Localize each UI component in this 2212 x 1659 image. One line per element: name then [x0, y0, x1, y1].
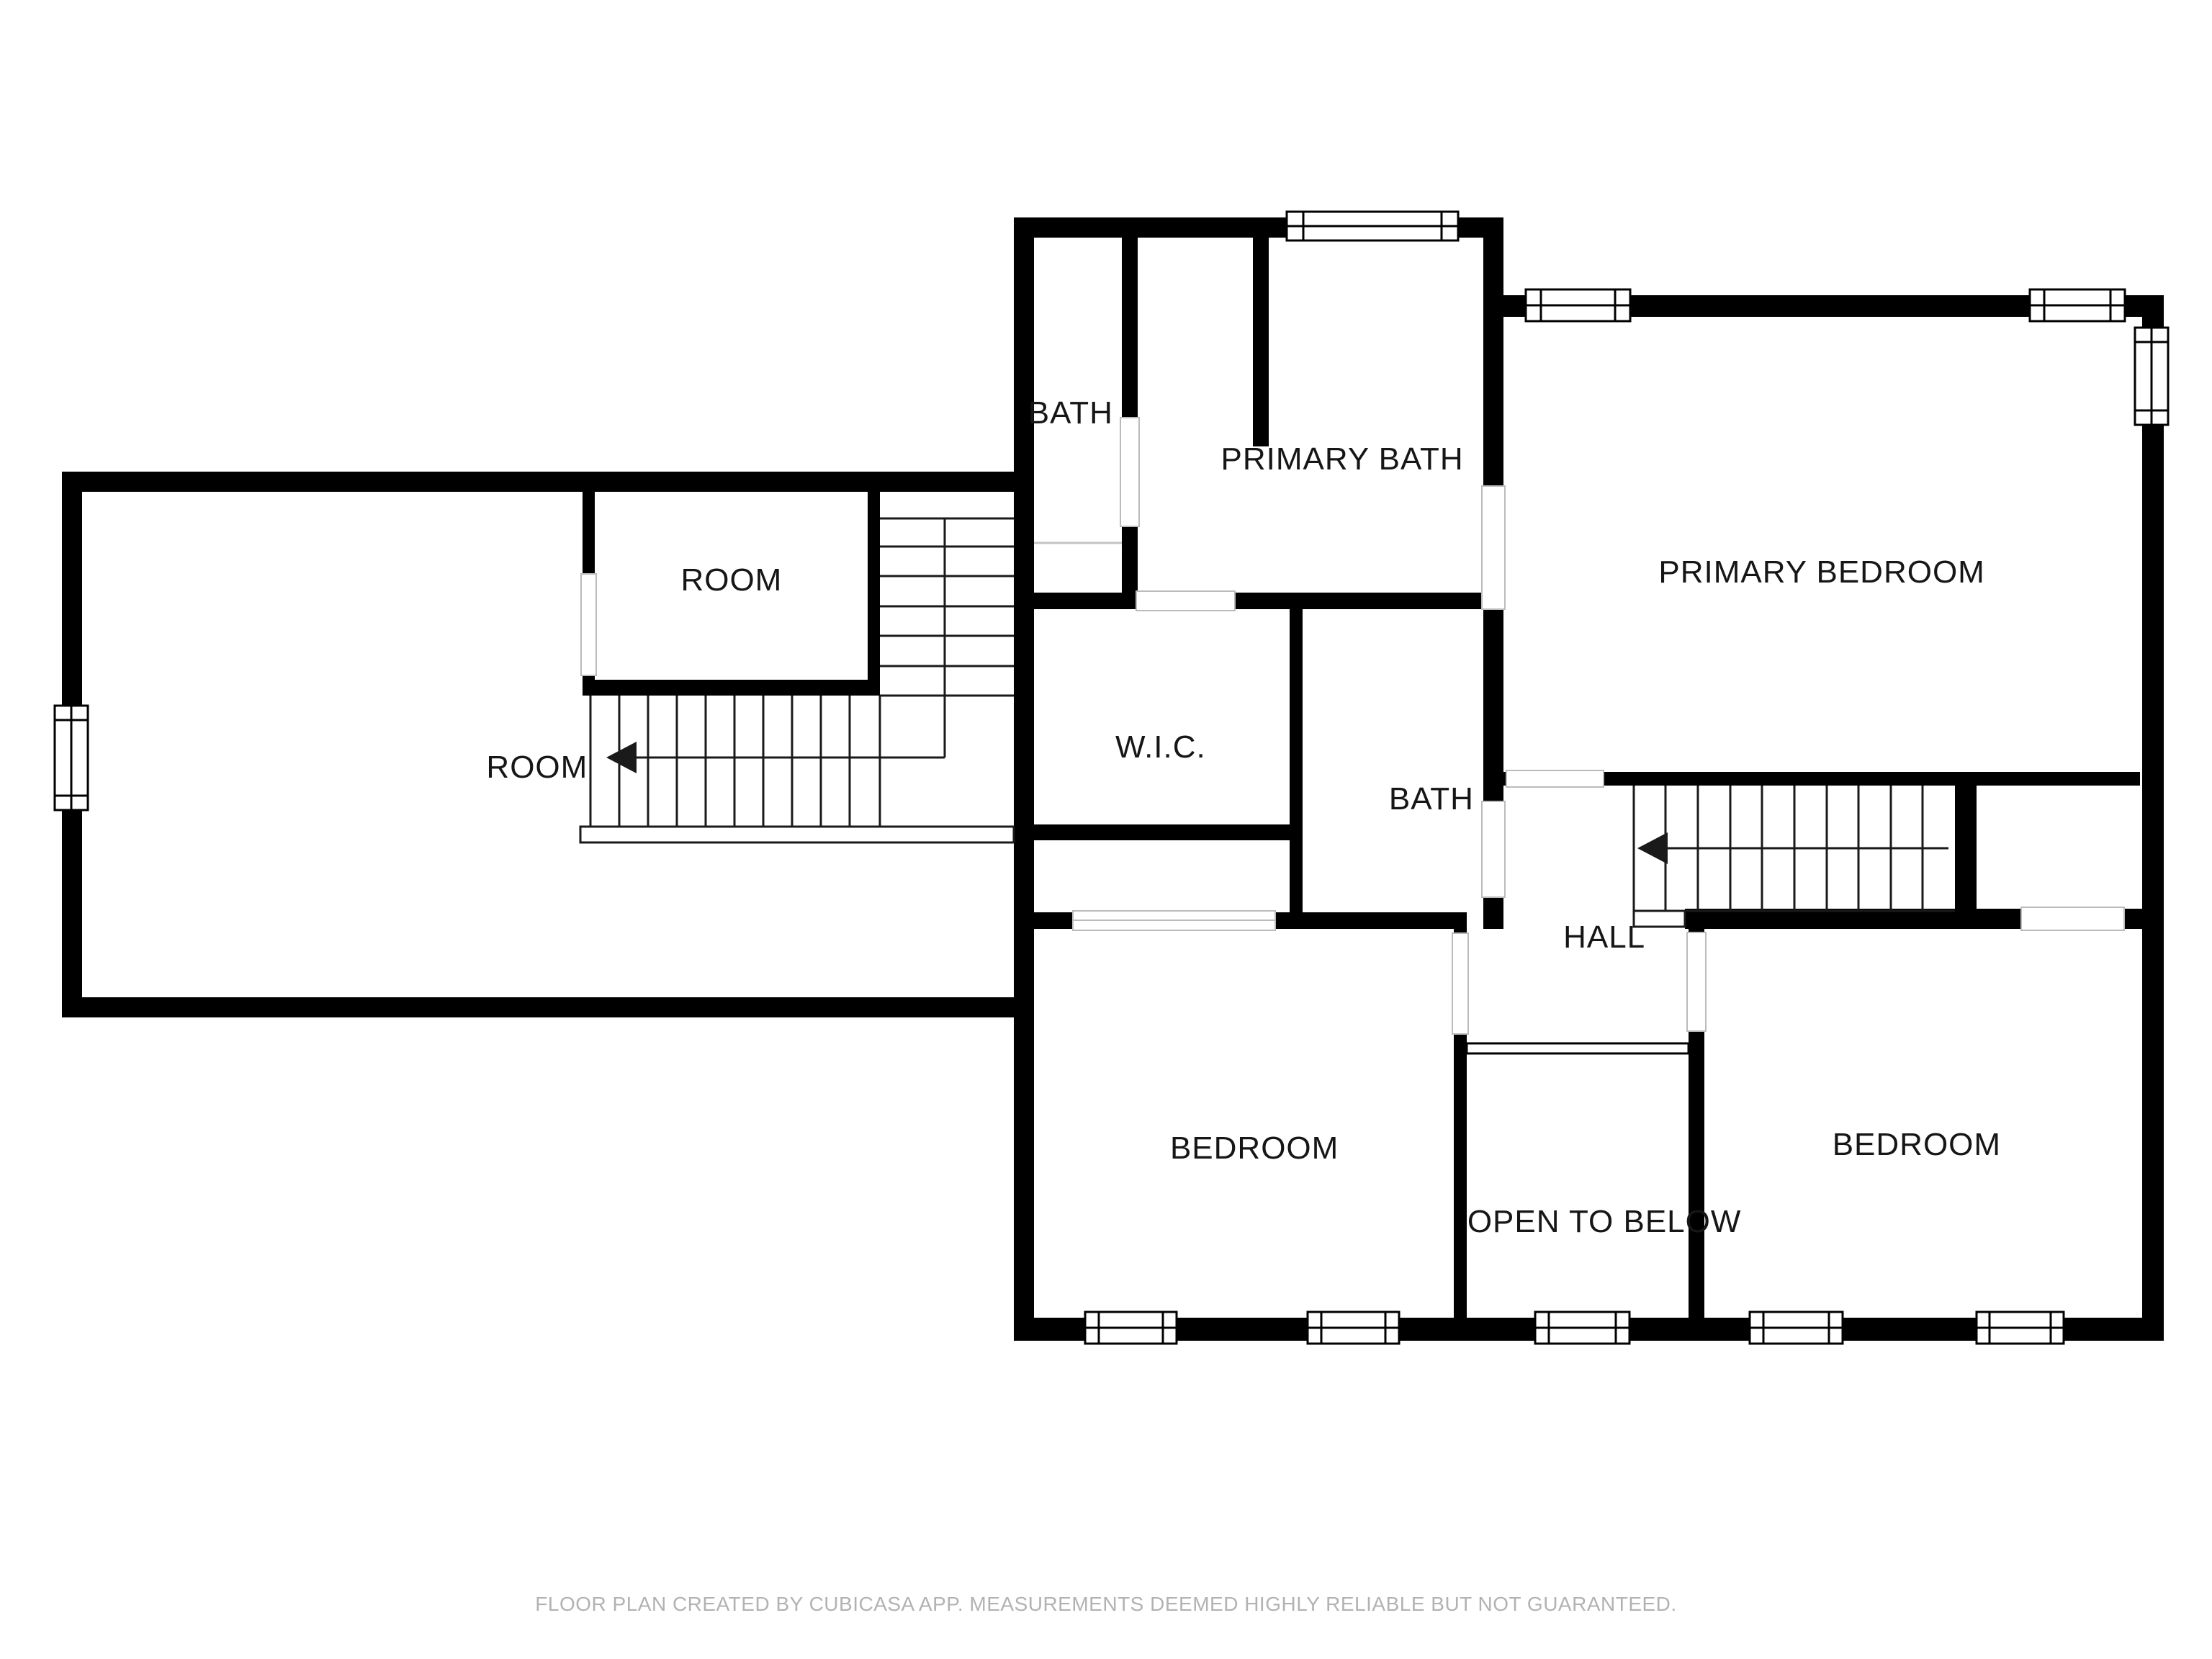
left-arrow-icon [606, 742, 945, 773]
room-label-open-to-below: OPEN TO BELOW [1467, 1204, 1742, 1240]
left-arrow-icon [1637, 832, 1948, 864]
room-label-bedroom-left: BEDROOM [1170, 1130, 1339, 1166]
window [1977, 1312, 2064, 1344]
room-label-bedroom-right: BEDROOM [1833, 1127, 2001, 1163]
window [2030, 289, 2125, 321]
door-opening [1120, 418, 1139, 526]
door-opening [1136, 591, 1235, 611]
stair-landing [580, 827, 1014, 842]
window [1308, 1312, 1399, 1344]
floor-plan-page: BATH PRIMARY BATH PRIMARY BEDROOM ROOM R… [0, 0, 2212, 1659]
window [1535, 1312, 1629, 1344]
window [1287, 212, 1458, 240]
door-opening [2021, 907, 2124, 930]
window [1750, 1312, 1843, 1344]
room-label-primary-bath: PRIMARY BATH [1220, 441, 1463, 477]
room-label-bath-center: BATH [1389, 781, 1474, 817]
room-label-room-left: ROOM [486, 750, 588, 786]
floor-plan-drawing [0, 0, 2212, 1659]
window [1526, 289, 1630, 321]
staircase-hall [1634, 786, 1955, 927]
room-label-hall: HALL [1563, 920, 1645, 956]
window [2135, 328, 2168, 425]
room-label-primary-bedroom: PRIMARY BEDROOM [1658, 554, 1984, 590]
door-opening [1482, 801, 1505, 897]
walls [62, 217, 2164, 1341]
window [55, 706, 88, 810]
window [1085, 1312, 1177, 1344]
door-opening [1506, 770, 1604, 787]
door-opening [1452, 933, 1468, 1034]
footer-disclaimer: FLOOR PLAN CREATED BY CUBICASA APP. MEAS… [535, 1593, 1676, 1616]
door-opening [1687, 932, 1706, 1031]
room-label-wic: W.I.C. [1115, 729, 1206, 765]
door-opening [1482, 486, 1505, 609]
door-opening [581, 574, 596, 675]
open-to-below-railing [1467, 1043, 1689, 1053]
door-openings [581, 418, 2124, 1034]
room-label-bath-top: BATH [1028, 395, 1113, 431]
room-label-room-inner: ROOM [680, 562, 782, 598]
